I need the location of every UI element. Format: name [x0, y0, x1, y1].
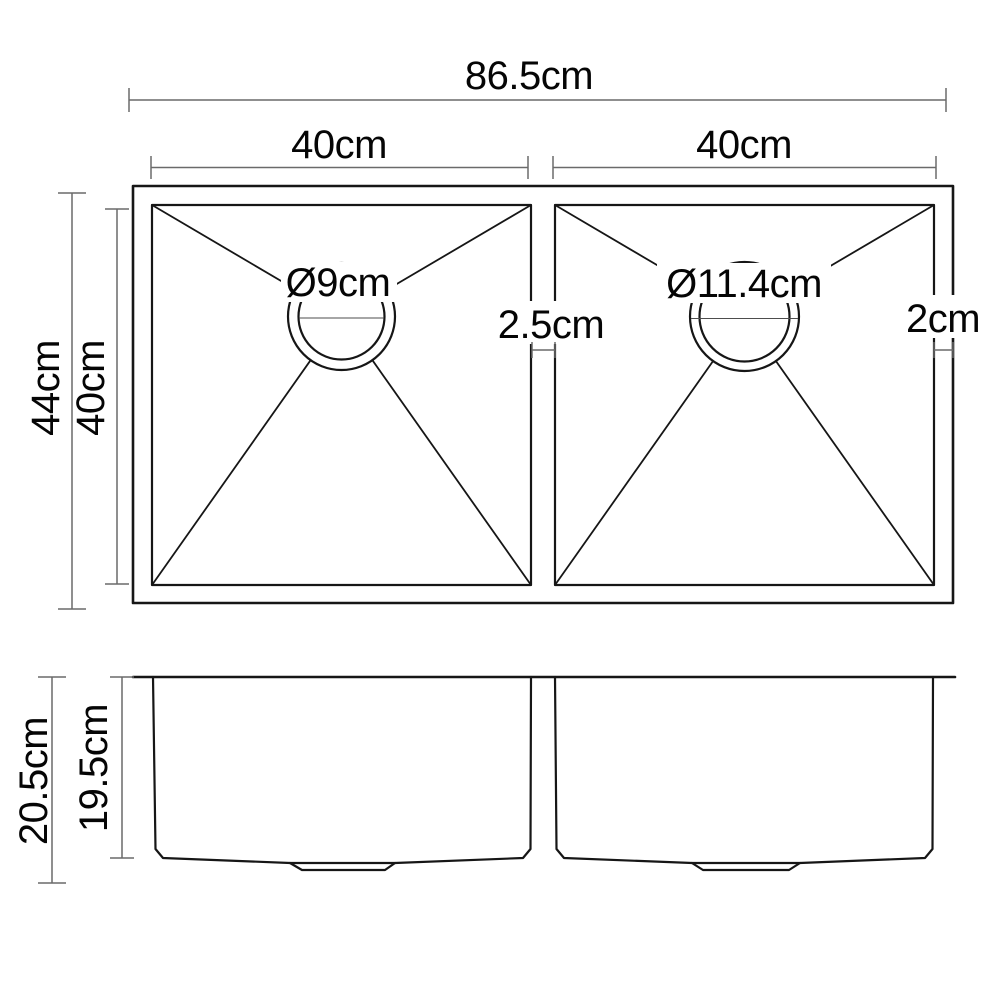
divider-width-label: 2.5cm [498, 303, 604, 347]
right-bowl-width-label: 40cm [696, 123, 792, 167]
sink-dimension-diagram: 86.5cm 40cm 40cm Ø9cm Ø11.4cm 2.5cm 2cm … [0, 0, 1000, 1000]
overall-depth-label: 44cm [24, 340, 68, 436]
right-bowl-diagonal-br [776, 361, 934, 585]
front-view: 20.5cm 19.5cm [12, 677, 955, 883]
bowl-depth-label: 40cm [69, 340, 113, 436]
right-bowl-diagonal-bl [555, 361, 713, 585]
left-bowl-width-label: 40cm [291, 123, 387, 167]
right-edge-width-label: 2cm [906, 297, 980, 341]
left-bowl-diagonal-tl [152, 205, 295, 289]
top-view: 86.5cm 40cm 40cm Ø9cm Ø11.4cm 2.5cm 2cm … [24, 54, 983, 609]
left-bowl-diagonal-br [372, 360, 531, 585]
diagram-canvas: 86.5cm 40cm 40cm Ø9cm Ø11.4cm 2.5cm 2cm … [0, 0, 1000, 1000]
outer-rim-rect [133, 186, 953, 603]
front-right-bowl-outline [555, 677, 933, 863]
left-bowl-diagonal-tr [388, 205, 531, 289]
left-drain-diameter-label: Ø9cm [286, 261, 391, 305]
left-bowl-diagonal-bl [152, 360, 311, 585]
overall-height-label: 20.5cm [12, 717, 56, 845]
overall-width-label: 86.5cm [465, 54, 593, 98]
dim-right-edge-width [934, 342, 953, 358]
front-left-bowl-outline [153, 677, 531, 863]
bowl-height-label: 19.5cm [72, 704, 116, 832]
right-drain-diameter-label: Ø11.4cm [666, 262, 822, 306]
